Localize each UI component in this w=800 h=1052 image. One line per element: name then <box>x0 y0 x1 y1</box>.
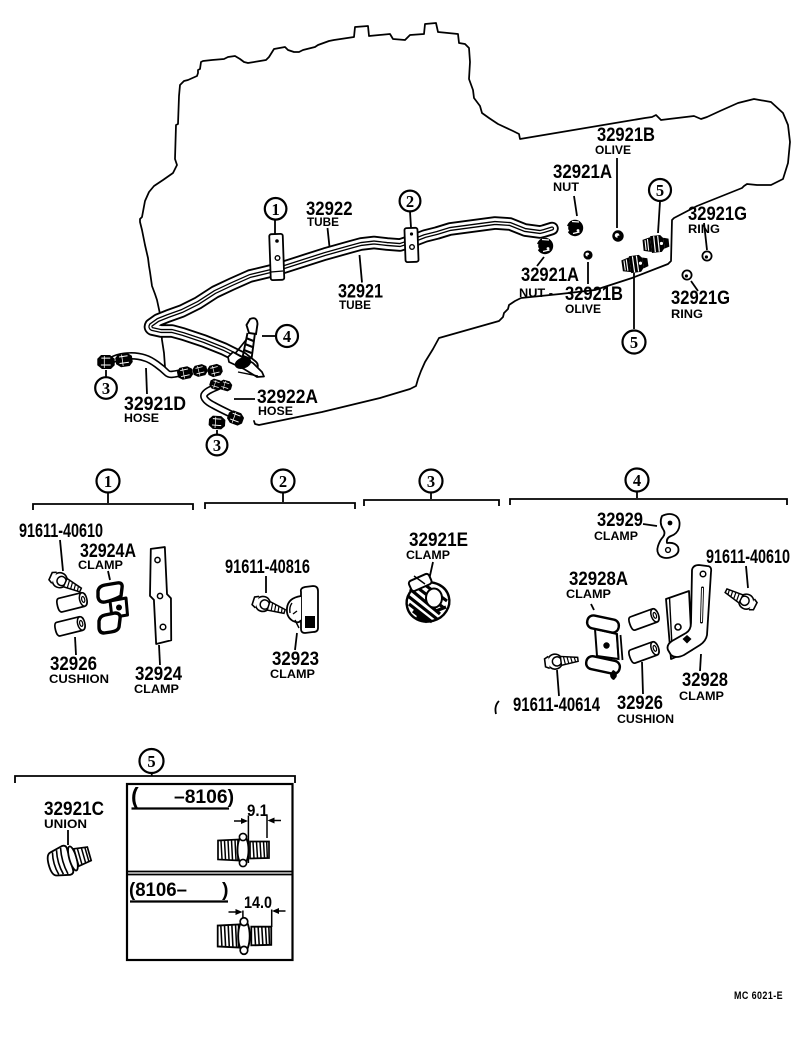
svg-text:(: ( <box>131 783 139 809</box>
svg-text:5: 5 <box>630 333 638 352</box>
svg-text:91611-40610: 91611-40610 <box>706 546 790 568</box>
svg-text:(8106–: (8106– <box>129 879 187 901</box>
svg-text:91611-40816: 91611-40816 <box>225 556 310 578</box>
svg-text:32928: 32928 <box>682 669 728 691</box>
svg-text:32926: 32926 <box>617 692 663 714</box>
svg-text:3: 3 <box>102 379 110 398</box>
svg-text:CLAMP: CLAMP <box>566 587 611 601</box>
svg-text:2: 2 <box>279 472 287 491</box>
svg-text:CUSHION: CUSHION <box>49 672 109 686</box>
svg-text:4: 4 <box>283 327 291 346</box>
svg-text:32921G: 32921G <box>671 287 730 309</box>
svg-text:91611-40610: 91611-40610 <box>19 520 103 542</box>
svg-text:TUBE: TUBE <box>339 298 371 312</box>
svg-text:2: 2 <box>406 192 414 211</box>
svg-text:–8106): –8106) <box>174 786 234 808</box>
svg-text:3: 3 <box>213 436 221 455</box>
svg-text:RING: RING <box>671 307 703 321</box>
svg-text:HOSE: HOSE <box>124 411 159 425</box>
svg-text:CUSHION: CUSHION <box>617 712 674 726</box>
svg-text:1: 1 <box>104 472 112 491</box>
svg-text:CLAMP: CLAMP <box>134 682 179 696</box>
svg-text:CLAMP: CLAMP <box>594 529 638 543</box>
svg-text:32929: 32929 <box>597 509 643 531</box>
svg-text:OLIVE: OLIVE <box>595 143 631 157</box>
svg-text:CLAMP: CLAMP <box>679 689 724 703</box>
svg-text:CLAMP: CLAMP <box>406 548 450 562</box>
svg-text:CLAMP: CLAMP <box>78 558 123 572</box>
svg-text:TUBE: TUBE <box>307 215 339 229</box>
svg-text:NUT -: NUT - <box>519 286 553 300</box>
svg-text:NUT: NUT <box>553 180 580 194</box>
svg-text:3: 3 <box>427 472 435 491</box>
svg-text:14.0: 14.0 <box>244 893 272 912</box>
svg-text:): ) <box>222 879 229 901</box>
svg-text:91611-40614: 91611-40614 <box>513 694 600 716</box>
svg-text:5: 5 <box>147 752 155 771</box>
svg-text:CLAMP: CLAMP <box>270 667 315 681</box>
svg-text:MC 6021-E: MC 6021-E <box>734 990 783 1002</box>
svg-text:1: 1 <box>271 200 279 219</box>
svg-text:9.1: 9.1 <box>247 801 268 820</box>
svg-text:4: 4 <box>633 471 641 490</box>
svg-text:UNION: UNION <box>44 817 87 831</box>
svg-text:HOSE: HOSE <box>258 404 293 418</box>
svg-text:OLIVE: OLIVE <box>565 302 601 316</box>
svg-text:5: 5 <box>656 181 664 200</box>
